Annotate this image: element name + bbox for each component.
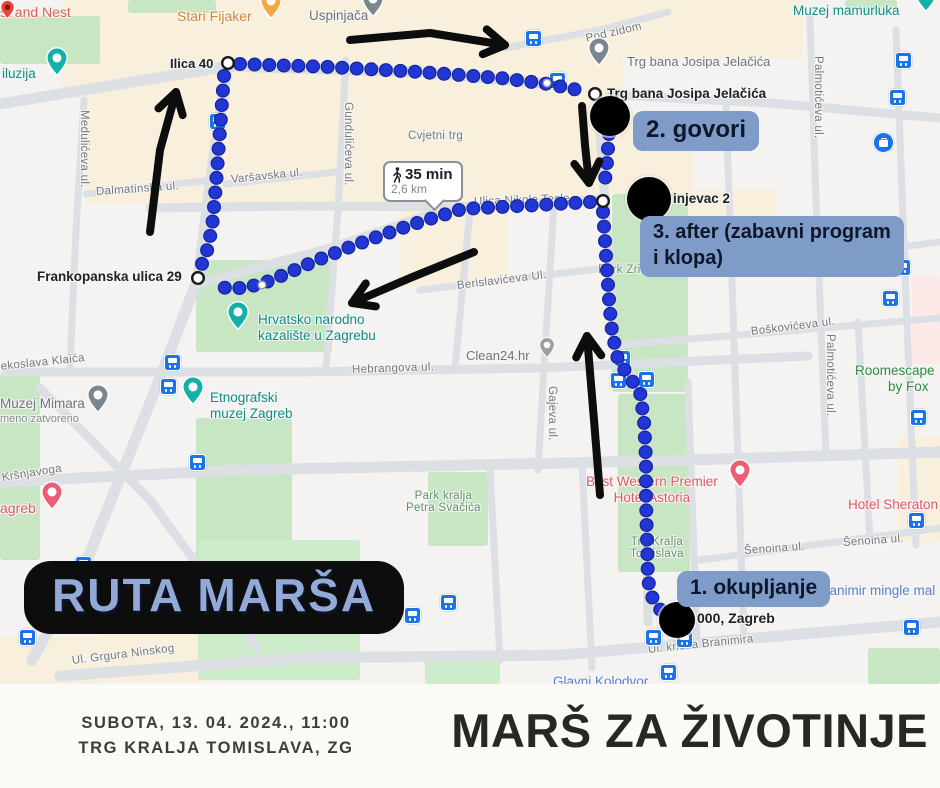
arrow-north-zrinjevac (587, 336, 600, 495)
label-3-after: 3. after (zabavni program i klopa) (640, 216, 904, 277)
label-2-govori: 2. govori (633, 111, 759, 151)
arrow-east (350, 33, 505, 45)
footer: SUBOTA, 13. 04. 2024., 11:00 TRG KRALJA … (0, 684, 940, 788)
arrow-north-ilica (150, 92, 176, 232)
route-title-badge: RUTA MARŠA (24, 561, 404, 634)
route-poster: Medulićeva ul.Gundulićeva ul.Palmotićeva… (0, 0, 940, 788)
arrow-southwest (352, 252, 474, 303)
walk-time-row: 35 min (391, 166, 455, 183)
walking-icon (391, 167, 403, 183)
walk-distance: 2,6 km (391, 182, 455, 196)
event-title: MARŠ ZA ŽIVOTINJE (451, 703, 928, 758)
event-datetime-block: SUBOTA, 13. 04. 2024., 11:00 TRG KRALJA … (70, 711, 362, 761)
walk-time-tooltip: 35 min 2,6 km (383, 161, 463, 202)
map-canvas: Medulićeva ul.Gundulićeva ul.Palmotićeva… (0, 0, 940, 684)
route-title: RUTA MARŠA (52, 569, 376, 621)
label-1-okupljanje: 1. okupljanje (677, 571, 830, 607)
event-location-line: TRG KRALJA TOMISLAVA, ZG (70, 736, 362, 761)
walk-time: 35 min (405, 166, 453, 183)
event-date-line: SUBOTA, 13. 04. 2024., 11:00 (70, 711, 362, 736)
